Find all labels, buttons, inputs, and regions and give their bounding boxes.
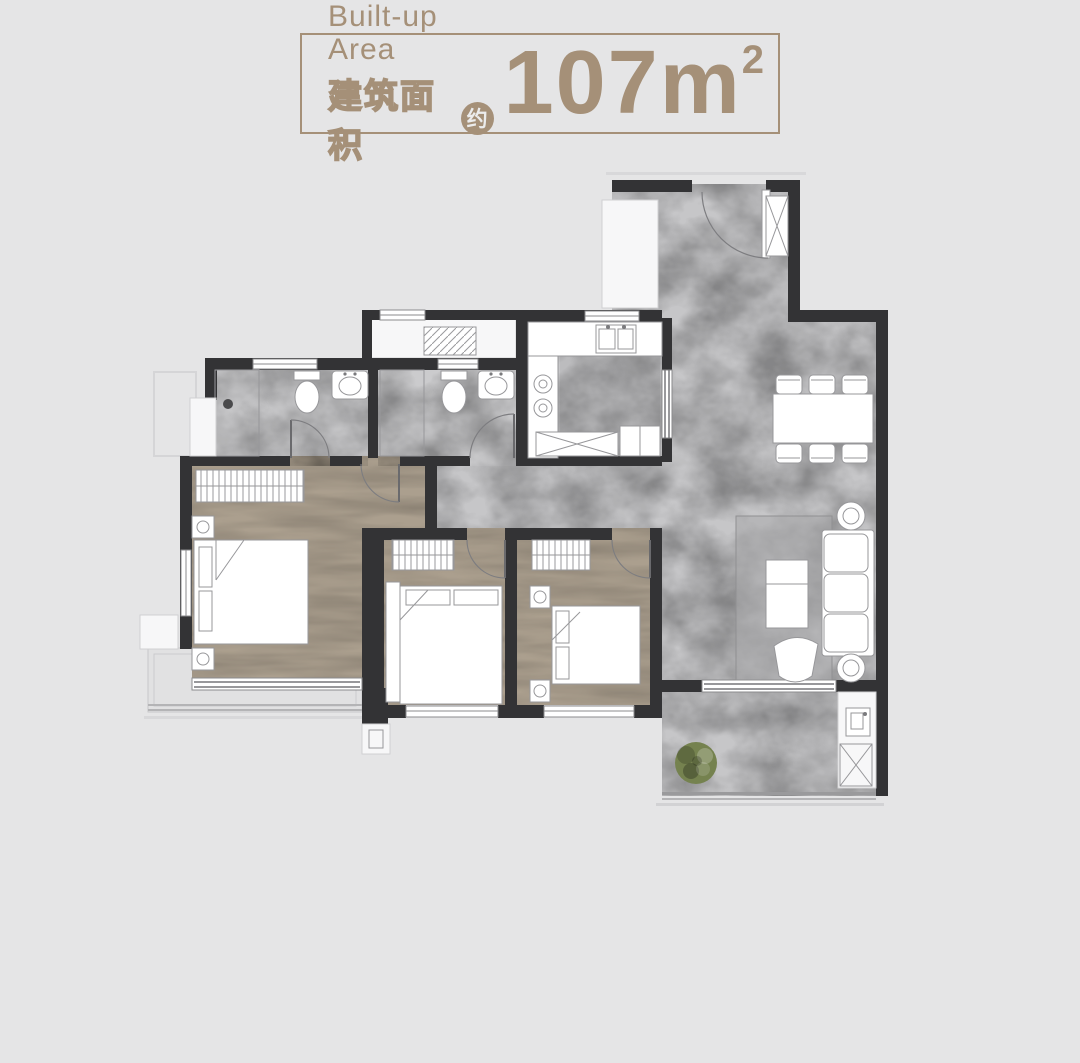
ac-unit-icon [362, 724, 390, 754]
ledge-right-balcony [656, 803, 884, 806]
nightstand-icon [192, 648, 214, 670]
floorplan-page: Built-up Area 建筑面积 约 107m 2 [0, 0, 1080, 1063]
bedroom3-window [544, 706, 634, 717]
kitchen-window [585, 311, 639, 321]
kitchen-counter-top [528, 322, 662, 356]
dining-set [773, 375, 873, 463]
nightstand-icon [530, 680, 550, 702]
dining-chair-icon [776, 375, 802, 394]
dining-chair-icon [809, 444, 835, 463]
master-left-window [181, 550, 191, 616]
dining-chair-icon [842, 444, 868, 463]
bedroom2-window [406, 706, 498, 717]
nightstand-icon [192, 516, 214, 538]
dining-chair-icon [776, 444, 802, 463]
utility-window [380, 310, 425, 320]
armchair-icon [774, 637, 818, 682]
toilet-icon [294, 371, 320, 413]
coffee-table-icon [766, 560, 808, 628]
floor-plan [0, 0, 1080, 1063]
sink-vanity-icon [332, 371, 368, 399]
ledge-left-balcony [144, 716, 368, 719]
ac-unit-icon [140, 615, 178, 649]
exterior-notch [602, 200, 658, 308]
ledge-line-top [606, 172, 806, 175]
shoe-cabinet-icon [766, 196, 788, 256]
utility-bay [838, 692, 876, 788]
kitchen-sink-icon [596, 325, 636, 353]
dining-chair-icon [842, 375, 868, 394]
shelf-icon [386, 582, 400, 702]
washer-nook [190, 398, 216, 456]
master-bedroom [192, 470, 308, 670]
wardrobe-icon [196, 470, 304, 502]
living-set [736, 502, 874, 682]
bed-icon [552, 606, 640, 684]
toilet-icon [441, 371, 467, 413]
kitchen-slider-door [662, 370, 672, 438]
dining-chair-icon [809, 375, 835, 394]
sofa-icon [822, 530, 874, 656]
bathroom2-window [438, 359, 478, 369]
wardrobe-icon [532, 540, 590, 570]
master-balcony-slider [192, 678, 362, 690]
floor-drain-icon [223, 399, 233, 409]
water-heater-icon [846, 708, 870, 736]
side-table-icon [837, 654, 865, 682]
side-table-icon [837, 502, 865, 530]
fridge-icon [620, 426, 660, 456]
plant-icon [675, 742, 717, 784]
living-balcony-slider [702, 680, 836, 692]
bed-icon [194, 540, 308, 644]
ac-platform-icon [424, 327, 476, 355]
bathroom1-window [253, 359, 317, 369]
bed-icon [400, 586, 502, 704]
nightstand-icon [530, 586, 550, 608]
dining-table-icon [773, 394, 873, 443]
kitchen-cabinet-icon [536, 432, 618, 456]
sink-vanity-icon [478, 371, 514, 399]
wardrobe-icon [392, 540, 454, 570]
